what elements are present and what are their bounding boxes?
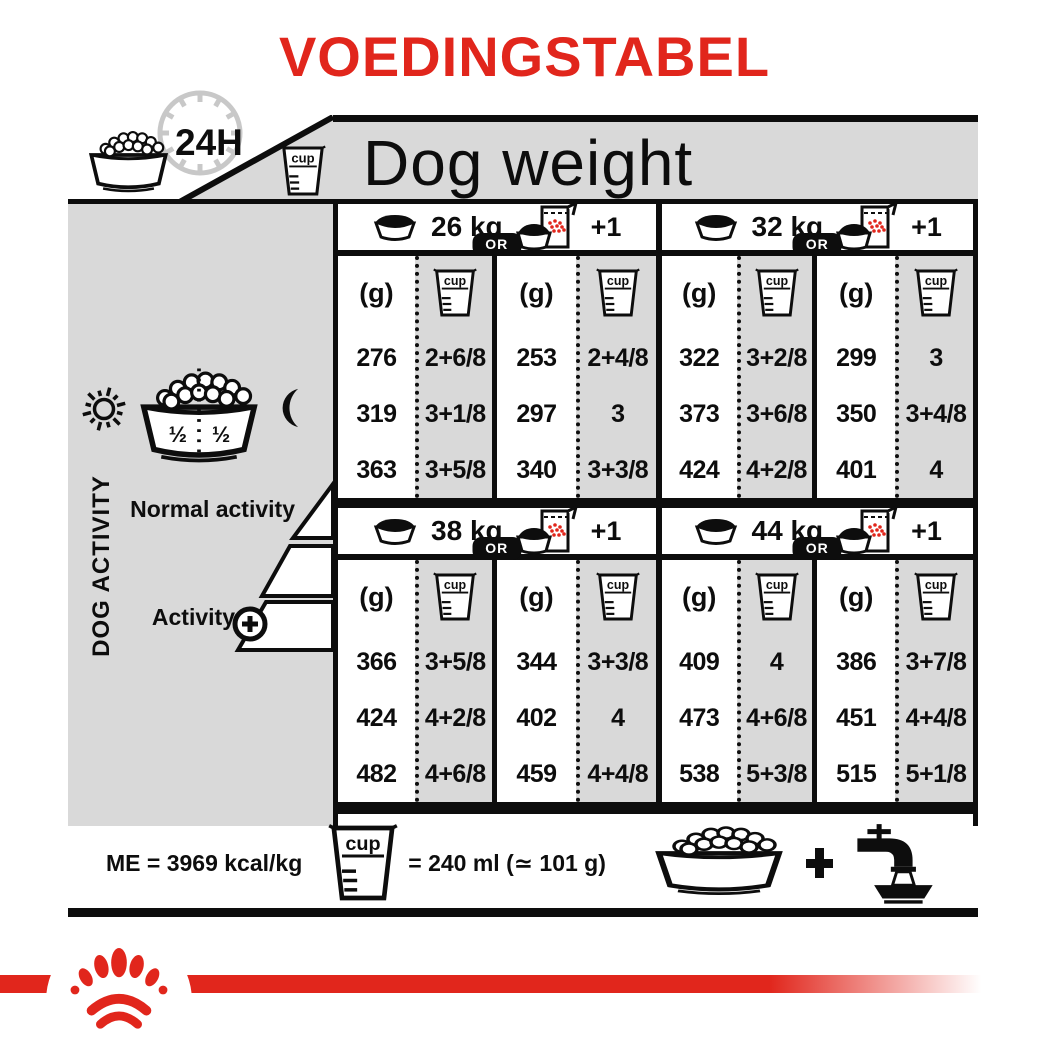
dry-grams-value: 424 [662, 442, 737, 498]
measuring-cup-icon: cup [596, 572, 640, 622]
cup-header: cup [741, 256, 812, 330]
dry-grams-value: 482 [338, 746, 415, 802]
grams-column: (g) 253297340 [497, 256, 576, 498]
cup-text: cup [291, 151, 314, 166]
plus-one-label: +1 [911, 212, 942, 243]
wet-cup-value: 3+7/8 [899, 634, 973, 690]
wet-food-pouch-bowl-icon [516, 505, 578, 557]
measuring-cup-icon: cup [433, 572, 477, 622]
wet-grams-value: 401 [817, 442, 895, 498]
measuring-cup-icon: cup [280, 145, 326, 197]
cup-equivalence-label: = 240 ml (≃ 101 g) [408, 850, 606, 877]
plus-one-label: +1 [911, 516, 942, 547]
wet-cup-value: 3 [580, 386, 655, 442]
grams-header: (g) [338, 560, 415, 634]
dry-cup-value: 4+2/8 [741, 442, 812, 498]
cup-text: cup [444, 274, 467, 288]
table-row-bottom: 38 kg +1 OR (g) 366424482 cup 3+5/84+2/8… [338, 508, 973, 814]
page-title: VOEDINGSTABEL [0, 24, 1049, 89]
cup-text: cup [607, 578, 630, 592]
weight-data-grid: 26 kg +1 OR (g) 276319363 cup 2+6/83+1/8… [333, 204, 978, 826]
grams-header: (g) [338, 256, 415, 330]
dry-cup-value: 3+6/8 [741, 386, 812, 442]
dry-cup-value: 5+3/8 [741, 746, 812, 802]
weight-header: 44 kg +1 OR [662, 508, 974, 560]
grams-header: (g) [662, 256, 737, 330]
half-left-label: ½ [169, 422, 187, 447]
feeding-chart: 24H cup Dog weight ½ ½ [68, 115, 978, 917]
dry-grams-value: 366 [338, 634, 415, 690]
section-body: (g) 409473538 cup 44+6/85+3/8 (g) 386451… [662, 560, 974, 802]
or-label: OR [806, 540, 829, 556]
wet-grams-value: 515 [817, 746, 895, 802]
wet-grams-value: 299 [817, 330, 895, 386]
wet-cup-value: 4 [899, 442, 973, 498]
or-label: OR [485, 236, 508, 252]
wet-food-columns: (g) 386451515 cup 3+7/84+4/85+1/8 [817, 560, 973, 802]
cup-column: cup 3+5/84+2/84+6/8 [415, 560, 492, 802]
wet-food-columns: (g) 253297340 cup 2+4/833+3/8 [497, 256, 656, 498]
dog-weight-label: Dog weight [363, 126, 693, 200]
half-half-bowl-icon: ½ ½ [130, 368, 268, 472]
wet-food-pouch-bowl-icon [836, 505, 898, 557]
dry-cup-value: 3+5/8 [419, 634, 492, 690]
wet-cup-value: 3+3/8 [580, 442, 655, 498]
dry-food-columns: (g) 409473538 cup 44+6/85+3/8 [662, 560, 818, 802]
cup-text: cup [925, 578, 948, 592]
cup-text: cup [346, 833, 381, 855]
plus-one-label: +1 [591, 516, 622, 547]
weight-section: 38 kg +1 OR (g) 366424482 cup 3+5/84+2/8… [338, 508, 656, 802]
or-label: OR [485, 540, 508, 556]
grams-column: (g) 386451515 [817, 560, 895, 802]
wet-grams-value: 350 [817, 386, 895, 442]
wet-cup-value: 5+1/8 [899, 746, 973, 802]
dry-grams-value: 473 [662, 690, 737, 746]
dry-grams-value: 319 [338, 386, 415, 442]
grams-column: (g) 344402459 [497, 560, 576, 802]
wet-grams-value: 402 [497, 690, 576, 746]
grams-column: (g) 409473538 [662, 560, 737, 802]
grams-header: (g) [817, 256, 895, 330]
cup-text: cup [765, 274, 788, 288]
dog-activity-panel: ½ ½ DOG ACTIVITY Normal activity Activit… [68, 204, 333, 826]
section-body: (g) 276319363 cup 2+6/83+1/83+5/8 (g) 25… [338, 256, 656, 498]
dry-food-columns: (g) 276319363 cup 2+6/83+1/83+5/8 [338, 256, 497, 498]
grams-column: (g) 276319363 [338, 256, 415, 498]
cup-text: cup [925, 274, 948, 288]
table-row-top: 26 kg +1 OR (g) 276319363 cup 2+6/83+1/8… [338, 204, 973, 508]
water-tap-icon [844, 822, 936, 904]
cup-header: cup [419, 256, 492, 330]
weight-section: 26 kg +1 OR (g) 276319363 cup 2+6/83+1/8… [338, 204, 656, 498]
wet-cup-value: 3+3/8 [580, 634, 655, 690]
dry-cup-value: 4+2/8 [419, 690, 492, 746]
dry-food-columns: (g) 322373424 cup 3+2/83+6/84+2/8 [662, 256, 818, 498]
cup-column: cup 44+6/85+3/8 [737, 560, 812, 802]
dry-cup-value: 4+6/8 [419, 746, 492, 802]
dry-food-bowl-icon [693, 516, 739, 547]
grams-header: (g) [497, 560, 576, 634]
wet-cup-value: 4+4/8 [580, 746, 655, 802]
moon-icon [276, 386, 310, 430]
dry-grams-value: 373 [662, 386, 737, 442]
activity-level-triangles [224, 480, 333, 658]
metabolizable-energy-label: ME = 3969 kcal/kg [106, 850, 302, 877]
footer-info: ME = 3969 kcal/kg cup = 240 ml (≃ 101 g) [68, 826, 978, 917]
dry-grams-value: 409 [662, 634, 737, 690]
wet-cup-value: 3+4/8 [899, 386, 973, 442]
wet-cup-value: 3 [899, 330, 973, 386]
grams-header: (g) [817, 560, 895, 634]
dry-cup-value: 3+1/8 [419, 386, 492, 442]
measuring-cup-icon: cup [328, 824, 398, 902]
wet-grams-value: 459 [497, 746, 576, 802]
dry-grams-value: 276 [338, 330, 415, 386]
wet-grams-value: 253 [497, 330, 576, 386]
measuring-cup-icon: cup [328, 824, 398, 902]
wet-cup-value: 4 [580, 690, 655, 746]
cup-header: cup [899, 560, 973, 634]
section-body: (g) 322373424 cup 3+2/83+6/84+2/8 (g) 29… [662, 256, 974, 498]
measuring-cup-icon: cup [280, 145, 326, 197]
dry-grams-value: 538 [662, 746, 737, 802]
cup-column: cup 2+6/83+1/83+5/8 [415, 256, 492, 498]
dry-cup-value: 2+6/8 [419, 330, 492, 386]
grams-header: (g) [497, 256, 576, 330]
plus-icon [804, 846, 834, 880]
cup-column: cup 3+3/844+4/8 [576, 560, 655, 802]
measuring-cup-icon: cup [914, 268, 958, 318]
cup-header: cup [580, 560, 655, 634]
plus-circle-icon [235, 609, 265, 639]
wet-cup-value: 2+4/8 [580, 330, 655, 386]
dry-cup-value: 3+5/8 [419, 442, 492, 498]
measuring-cup-icon: cup [914, 572, 958, 622]
dog-activity-vertical-label: DOG ACTIVITY [88, 471, 116, 661]
section-body: (g) 366424482 cup 3+5/84+2/84+6/8 (g) 34… [338, 560, 656, 802]
grams-header: (g) [662, 560, 737, 634]
cup-header: cup [899, 256, 973, 330]
weight-header: 38 kg +1 OR [338, 508, 656, 560]
cup-text: cup [765, 578, 788, 592]
cup-column: cup 33+4/84 [895, 256, 973, 498]
kibble-bowl-icon [644, 824, 794, 902]
wet-grams-value: 386 [817, 634, 895, 690]
plus-one-label: +1 [591, 212, 622, 243]
dry-food-bowl-icon [372, 212, 418, 243]
grams-column: (g) 299350401 [817, 256, 895, 498]
dry-cup-value: 4 [741, 634, 812, 690]
cup-header: cup [580, 256, 655, 330]
dry-cup-value: 3+2/8 [741, 330, 812, 386]
royal-canin-paw-logo [70, 946, 168, 1036]
measuring-cup-icon: cup [433, 268, 477, 318]
weight-section: 32 kg +1 OR (g) 322373424 cup 3+2/83+6/8… [656, 204, 974, 498]
grams-column: (g) 322373424 [662, 256, 737, 498]
or-label: OR [806, 236, 829, 252]
cup-column: cup 2+4/833+3/8 [576, 256, 655, 498]
cup-column: cup 3+7/84+4/85+1/8 [895, 560, 973, 802]
or-badge: OR [793, 233, 842, 256]
dry-cup-value: 4+6/8 [741, 690, 812, 746]
cup-text: cup [444, 578, 467, 592]
cup-header: cup [419, 560, 492, 634]
dry-food-bowl-icon [693, 212, 739, 243]
dry-grams-value: 424 [338, 690, 415, 746]
dry-grams-value: 322 [662, 330, 737, 386]
half-right-label: ½ [212, 422, 230, 447]
food-plus-water-icons [644, 822, 936, 904]
wet-cup-value: 4+4/8 [899, 690, 973, 746]
measuring-cup-icon: cup [596, 268, 640, 318]
wet-food-columns: (g) 299350401 cup 33+4/84 [817, 256, 973, 498]
cup-text: cup [607, 274, 630, 288]
or-badge: OR [472, 537, 521, 560]
activity-label: Activity [152, 604, 235, 631]
dry-food-columns: (g) 366424482 cup 3+5/84+2/84+6/8 [338, 560, 497, 802]
wet-food-columns: (g) 344402459 cup 3+3/844+4/8 [497, 560, 656, 802]
dog-weight-header: Dog weight [333, 115, 978, 204]
wet-grams-value: 344 [497, 634, 576, 690]
wet-grams-value: 340 [497, 442, 576, 498]
wet-grams-value: 297 [497, 386, 576, 442]
weight-header: 26 kg +1 OR [338, 204, 656, 256]
measuring-cup-icon: cup [755, 268, 799, 318]
cup-column: cup 3+2/83+6/84+2/8 [737, 256, 812, 498]
weight-section: 44 kg +1 OR (g) 409473538 cup 44+6/85+3/… [656, 508, 974, 802]
sun-icon [78, 382, 130, 436]
weight-header: 32 kg +1 OR [662, 204, 974, 256]
cup-header: cup [741, 560, 812, 634]
dry-grams-value: 363 [338, 442, 415, 498]
measuring-cup-icon: cup [755, 572, 799, 622]
feeding-table-page: VOEDINGSTABEL 24H cup Dog weight [0, 0, 1049, 1049]
or-badge: OR [793, 537, 842, 560]
dry-food-bowl-icon [372, 516, 418, 547]
wet-food-pouch-bowl-icon [836, 201, 898, 253]
wet-grams-value: 451 [817, 690, 895, 746]
grams-column: (g) 366424482 [338, 560, 415, 802]
wet-food-pouch-bowl-icon [516, 201, 578, 253]
or-badge: OR [472, 233, 521, 256]
